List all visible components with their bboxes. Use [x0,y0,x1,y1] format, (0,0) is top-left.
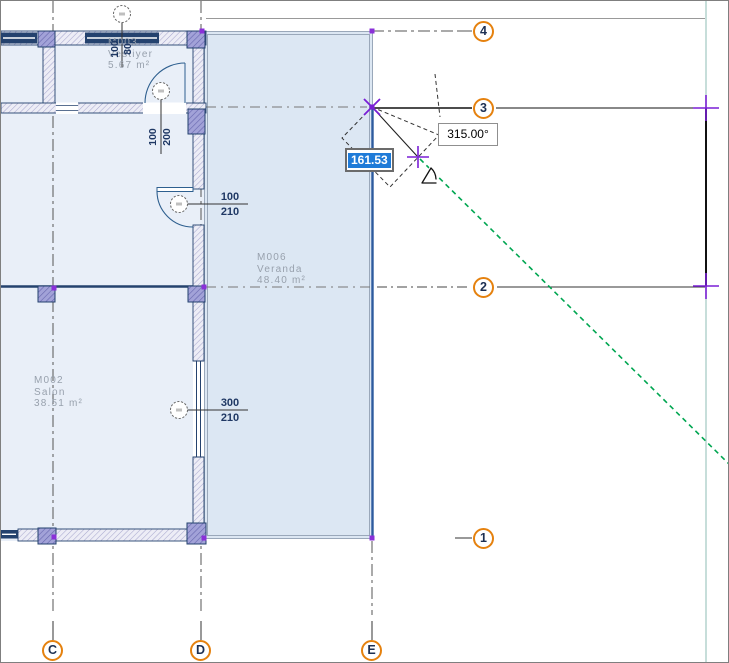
window-dim-height: 80 [122,31,134,67]
angle-reference-dash [435,74,440,117]
room-label-veranda: M006 Veranda 48.40 m² [257,252,306,287]
room-area: 38.51 m² [34,398,83,410]
grid-bubble-2[interactable]: 2 [473,277,494,298]
grid-bubble-4[interactable]: 4 [473,21,494,42]
door2-dim-width: 100 [212,191,248,203]
tracker-angle-readout: 315.00° [438,123,498,146]
room-area: 48.40 m² [257,275,306,287]
plan-linework [1,1,729,663]
window2-dim-height: 210 [212,412,248,424]
edit-overlay [342,74,729,465]
room-id: M006 [257,252,306,264]
room-name: Salon [34,387,83,399]
tracker-distance-input[interactable]: 161.53 [345,148,394,172]
room-label-salon: M002 Salon 38.51 m² [34,375,83,410]
grid-bubble-1[interactable]: 1 [473,528,494,549]
grid-bubble-C[interactable]: C [42,640,63,661]
window-dim-width: 100 [109,31,121,67]
rotate-cursor-icon [422,168,436,183]
grid-bubble-3[interactable]: 3 [473,98,494,119]
room-id: M002 [34,375,83,387]
tracker-distance-value[interactable]: 161.53 [348,153,391,168]
room-name: Veranda [257,264,306,276]
grid-bubble-E[interactable]: E [361,640,382,661]
door-dim-height: 200 [161,119,173,155]
grid-bubble-D[interactable]: D [190,640,211,661]
window2-dim-width: 300 [212,397,248,409]
floor-plan-canvas[interactable]: M003 Vestiyer 5.67 m² M002 Salon 38.51 m… [0,0,729,663]
door2-dim-height: 210 [212,206,248,218]
guide-line-green [420,159,729,465]
door-dim-width: 100 [147,119,159,155]
